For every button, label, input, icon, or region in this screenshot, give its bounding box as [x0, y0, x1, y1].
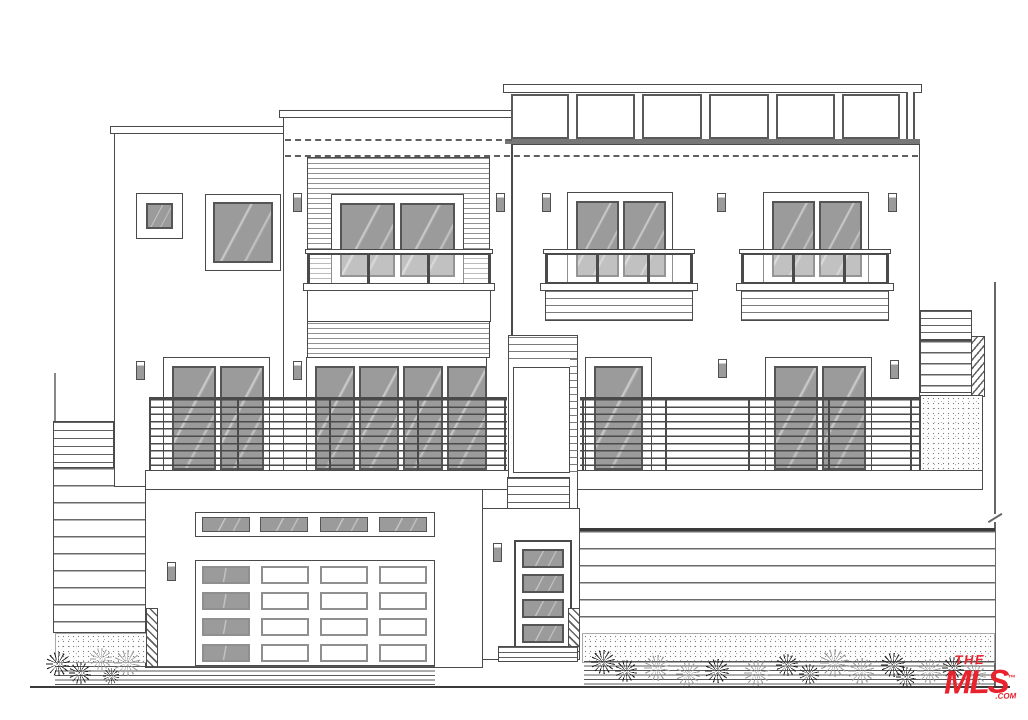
wall-sconce — [496, 193, 505, 212]
left-upper-stairs — [53, 421, 114, 468]
shrub-icon — [103, 668, 119, 684]
garage-door-panel — [261, 644, 309, 662]
juliet-post — [488, 255, 491, 283]
roof-deck-glass-panel — [576, 94, 635, 139]
juliet-a-louver-base — [545, 290, 693, 321]
wall-sconce — [717, 193, 726, 212]
roof-deck-glass-panel — [842, 94, 900, 139]
roof-dashed-line-upper — [285, 139, 512, 141]
roof-deck-glass-railing — [505, 92, 920, 139]
juliet-post — [843, 255, 846, 282]
shrub-icon — [705, 659, 729, 683]
juliet-post — [886, 255, 889, 282]
ground-line — [30, 686, 1010, 688]
railing-post — [417, 399, 419, 470]
left-large-window-pane — [213, 202, 273, 263]
wall-sconce — [888, 193, 897, 212]
wall-sconce — [542, 193, 551, 212]
shrub-icon — [776, 654, 798, 676]
entry-front-steps — [498, 646, 578, 662]
roof-dashed-line-lower — [285, 155, 918, 157]
themls-logo: THE MLS™ .COM — [943, 653, 1020, 716]
juliet-b-louver-base — [741, 290, 889, 321]
left-small-window-pane — [146, 203, 173, 229]
garage-door-panel — [261, 566, 309, 584]
left-site-pole — [54, 373, 56, 421]
wall-sconce — [718, 359, 727, 378]
garage-clerestory-pane — [379, 517, 427, 532]
shrub-icon — [744, 660, 770, 686]
railing-post — [910, 399, 912, 470]
right-stairs-side-wedge — [971, 336, 985, 397]
garage-door-panel — [320, 592, 368, 610]
garage-door-glass-panel — [202, 644, 250, 662]
cable-railing-right-run — [580, 397, 920, 470]
entry-tower-louver-top — [509, 337, 577, 359]
juliet-post — [367, 255, 370, 283]
shrub-icon — [799, 664, 819, 684]
roof-deck-glass-panel — [511, 94, 569, 139]
shrub-icon — [917, 659, 941, 683]
right-stucco-wall-block — [920, 395, 983, 473]
right-fence-wall — [580, 528, 995, 633]
roof-deck-end-post — [906, 92, 915, 139]
roof-deck-glass-panel — [776, 94, 835, 139]
garage-clerestory-pane — [260, 517, 308, 532]
garage-door-panel — [379, 618, 427, 636]
wall-sconce — [293, 193, 302, 212]
roof-deck-glass-panel — [642, 94, 702, 139]
juliet-post — [647, 255, 650, 282]
garage-door-panel — [261, 592, 309, 610]
garage-door-glass-panel — [202, 566, 250, 584]
juliet-b-glass — [741, 254, 889, 283]
shrub-icon — [820, 649, 848, 677]
juliet-post — [596, 255, 599, 282]
garage-door-panel — [379, 644, 427, 662]
shrub-icon — [591, 650, 615, 674]
themls-logo-trademark: ™ — [1007, 673, 1015, 682]
right-stairs-lower — [920, 340, 972, 393]
garage-door-panel — [320, 644, 368, 662]
wall-sconce — [293, 361, 302, 380]
shrub-icon — [644, 655, 670, 681]
garage-door-panel — [261, 618, 309, 636]
left-retaining-wall — [53, 467, 147, 633]
cable-railing-left-run — [149, 397, 507, 470]
left-hatched-post — [146, 608, 158, 668]
garage-door-panel — [320, 618, 368, 636]
garage-clerestory-pane — [202, 517, 250, 532]
wall-sconce — [136, 361, 145, 380]
railing-post — [748, 399, 750, 470]
shrub-icon — [848, 658, 874, 684]
entry-door-lite — [522, 599, 564, 618]
garage-sconce-light — [167, 562, 176, 581]
shrub-icon — [69, 662, 91, 684]
railing-post — [329, 399, 331, 470]
railing-post — [582, 399, 584, 470]
juliet-post — [690, 255, 693, 282]
juliet-post — [741, 255, 744, 282]
tower-juliet-base — [307, 290, 491, 322]
garage-clerestory-pane — [320, 517, 368, 532]
garage-door-glass-panel — [202, 618, 250, 636]
shrub-icon — [896, 667, 916, 687]
juliet-post — [792, 255, 795, 282]
entry-tower-recessed-door — [513, 367, 570, 473]
shrub-icon — [90, 648, 112, 670]
elevation-drawing-canvas: THE MLS™ .COM — [0, 0, 1028, 720]
railing-post — [237, 399, 239, 470]
tower-juliet-glass — [307, 254, 491, 284]
entry-door-lite — [522, 574, 564, 593]
roof-deck-glass-panel — [709, 94, 769, 139]
juliet-post — [427, 255, 430, 283]
railing-post — [149, 399, 151, 470]
garage-door-panel — [379, 566, 427, 584]
entry-sconce-light — [493, 543, 502, 562]
railing-post — [504, 399, 506, 470]
juliet-post — [307, 255, 310, 283]
shrub-icon — [676, 662, 700, 686]
juliet-post — [545, 255, 548, 282]
garage-door-panel — [320, 566, 368, 584]
shrub-icon — [615, 660, 637, 682]
entry-door-lite — [522, 549, 564, 568]
wall-sconce — [890, 360, 899, 379]
garage-door-glass-panel — [202, 592, 250, 610]
shrub-icon — [46, 652, 70, 676]
entry-tower-louver-side — [570, 359, 578, 473]
entry-door-lite — [522, 624, 564, 643]
garage-door-panel — [379, 592, 427, 610]
railing-post — [665, 399, 667, 470]
entry-upper-steps — [507, 477, 570, 509]
railing-post — [828, 399, 830, 470]
juliet-a-glass — [545, 254, 693, 283]
right-stairs-upper — [920, 310, 972, 340]
